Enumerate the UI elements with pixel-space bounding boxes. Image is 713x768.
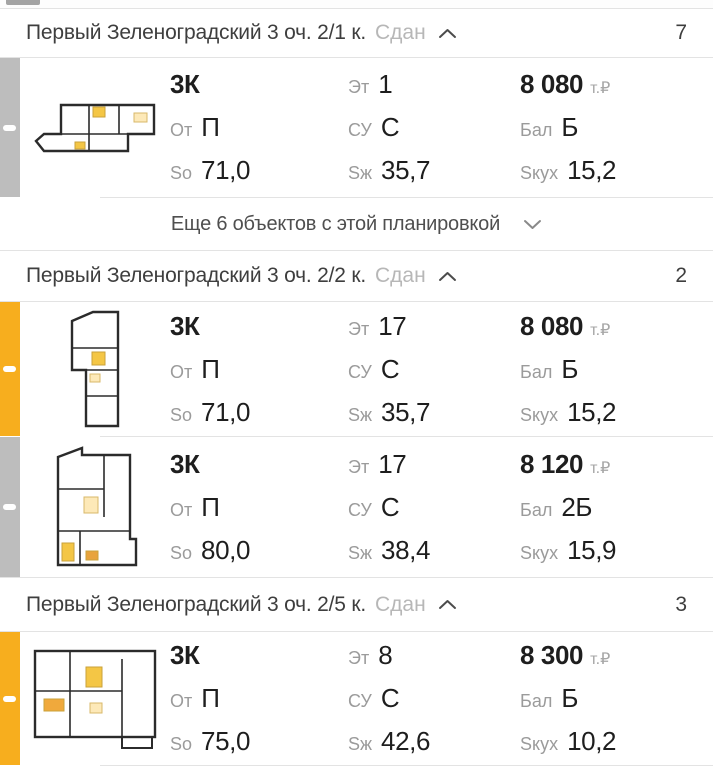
kitchen-area-value: 15,2 (567, 397, 616, 428)
floor-label: Эт (348, 319, 369, 340)
finish-value: П (201, 683, 219, 714)
bar-notch (3, 366, 16, 372)
floor-label: Эт (348, 77, 369, 98)
kitchen-area-value: 15,9 (567, 535, 616, 566)
finish-label: От (170, 500, 192, 521)
section-header-2-5[interactable]: Первый Зеленоградский 3 оч. 2/5 к. Сдан … (0, 578, 713, 631)
floor-value: 17 (378, 311, 406, 342)
floor-plan-thumbnail (20, 58, 170, 197)
bar-notch (3, 504, 16, 510)
more-objects-label: Еще 6 объектов с этой планировкой (171, 213, 500, 236)
floor-label: Эт (348, 457, 369, 478)
rooms-value: 3К (170, 640, 200, 671)
total-area-label: So (170, 734, 192, 755)
chevron-up-icon[interactable] (438, 599, 457, 610)
bathroom-label: СУ (348, 691, 372, 712)
total-area-value: 71,0 (201, 155, 250, 186)
kitchen-area-label: Sкух (520, 405, 558, 426)
bathroom-value: С (381, 112, 399, 143)
living-area-value: 35,7 (381, 155, 430, 186)
living-area-value: 42,6 (381, 726, 430, 757)
balcony-label: Бал (520, 120, 552, 141)
section-status: Сдан (375, 593, 426, 617)
bathroom-value: С (381, 354, 399, 385)
floor-plan-thumbnail (20, 302, 170, 436)
section-status: Сдан (375, 264, 426, 288)
status-bar-yellow (0, 302, 20, 436)
listing-row[interactable]: 3К ОтП So71,0 Эт17 СУС Sж35,7 8 080т.₽ Б… (0, 302, 713, 436)
total-area-label: So (170, 543, 192, 564)
finish-label: От (170, 691, 192, 712)
balcony-label: Бал (520, 691, 552, 712)
bathroom-value: С (381, 492, 399, 523)
listing-row[interactable]: 3К ОтП So75,0 Эт8 СУС Sж42,6 8 300т.₽ Ба… (0, 632, 713, 765)
section-title: Первый Зеленоградский 3 оч. 2/2 к. (26, 264, 366, 288)
finish-value: П (201, 492, 219, 523)
section-status: Сдан (375, 21, 426, 45)
price-unit: т.₽ (590, 458, 610, 478)
floor-plan-thumbnail (20, 632, 170, 765)
chevron-up-icon[interactable] (438, 271, 457, 282)
previous-row-fragment (0, 0, 713, 8)
total-area-label: So (170, 405, 192, 426)
living-area-label: Sж (348, 734, 372, 755)
rooms-value: 3К (170, 69, 200, 100)
floor-value: 1 (378, 69, 392, 100)
listings-screen: Первый Зеленоградский 3 оч. 2/1 к. Сдан … (0, 0, 713, 768)
section-header-2-2[interactable]: Первый Зеленоградский 3 оч. 2/2 к. Сдан … (0, 251, 713, 301)
bathroom-label: СУ (348, 120, 372, 141)
finish-value: П (201, 112, 219, 143)
floor-label: Эт (348, 648, 369, 669)
floor-plan-thumbnail (20, 437, 170, 577)
balcony-label: Бал (520, 362, 552, 383)
floor-value: 8 (378, 640, 392, 671)
price-value: 8 080 (520, 69, 583, 100)
price-unit: т.₽ (590, 649, 610, 669)
total-area-value: 71,0 (201, 397, 250, 428)
price-unit: т.₽ (590, 320, 610, 340)
bathroom-label: СУ (348, 500, 372, 521)
rooms-value: 3К (170, 449, 200, 480)
section-count: 2 (675, 264, 687, 288)
finish-label: От (170, 362, 192, 383)
total-area-value: 80,0 (201, 535, 250, 566)
section-count: 7 (675, 21, 687, 45)
balcony-value: Б (561, 112, 578, 143)
chevron-down-icon (523, 219, 542, 230)
more-objects-button[interactable]: Еще 6 объектов с этой планировкой (0, 198, 713, 250)
chevron-up-icon[interactable] (438, 28, 457, 39)
living-area-label: Sж (348, 405, 372, 426)
bathroom-value: С (381, 683, 399, 714)
status-bar-gray (0, 58, 20, 197)
bar-notch (3, 696, 16, 702)
total-area-value: 75,0 (201, 726, 250, 757)
section-header-2-1[interactable]: Первый Зеленоградский 3 оч. 2/1 к. Сдан … (0, 9, 713, 57)
balcony-value: 2Б (561, 492, 592, 523)
price-unit: т.₽ (590, 78, 610, 98)
previous-status-bar-fragment (6, 0, 40, 5)
balcony-value: Б (561, 354, 578, 385)
price-value: 8 300 (520, 640, 583, 671)
kitchen-area-value: 15,2 (567, 155, 616, 186)
balcony-value: Б (561, 683, 578, 714)
status-bar-yellow (0, 632, 20, 765)
balcony-label: Бал (520, 500, 552, 521)
section-title: Первый Зеленоградский 3 оч. 2/1 к. (26, 21, 366, 45)
living-area-value: 38,4 (381, 535, 430, 566)
finish-label: От (170, 120, 192, 141)
kitchen-area-value: 10,2 (567, 726, 616, 757)
listing-row[interactable]: 3К ОтП So71,0 Эт1 СУС Sж35,7 8 080т.₽ Ба… (0, 58, 713, 197)
status-bar-gray (0, 437, 20, 577)
kitchen-area-label: Sкух (520, 163, 558, 184)
finish-value: П (201, 354, 219, 385)
price-value: 8 080 (520, 311, 583, 342)
total-area-label: So (170, 163, 192, 184)
bar-notch (3, 125, 16, 131)
living-area-label: Sж (348, 163, 372, 184)
kitchen-area-label: Sкух (520, 543, 558, 564)
kitchen-area-label: Sкух (520, 734, 558, 755)
living-area-value: 35,7 (381, 397, 430, 428)
rooms-value: 3К (170, 311, 200, 342)
bathroom-label: СУ (348, 362, 372, 383)
floor-value: 17 (378, 449, 406, 480)
living-area-label: Sж (348, 543, 372, 564)
listing-row[interactable]: 3К ОтП So80,0 Эт17 СУС Sж38,4 8 120т.₽ Б… (0, 437, 713, 577)
price-value: 8 120 (520, 449, 583, 480)
divider (100, 765, 713, 766)
section-count: 3 (675, 593, 687, 617)
section-title: Первый Зеленоградский 3 оч. 2/5 к. (26, 593, 366, 617)
